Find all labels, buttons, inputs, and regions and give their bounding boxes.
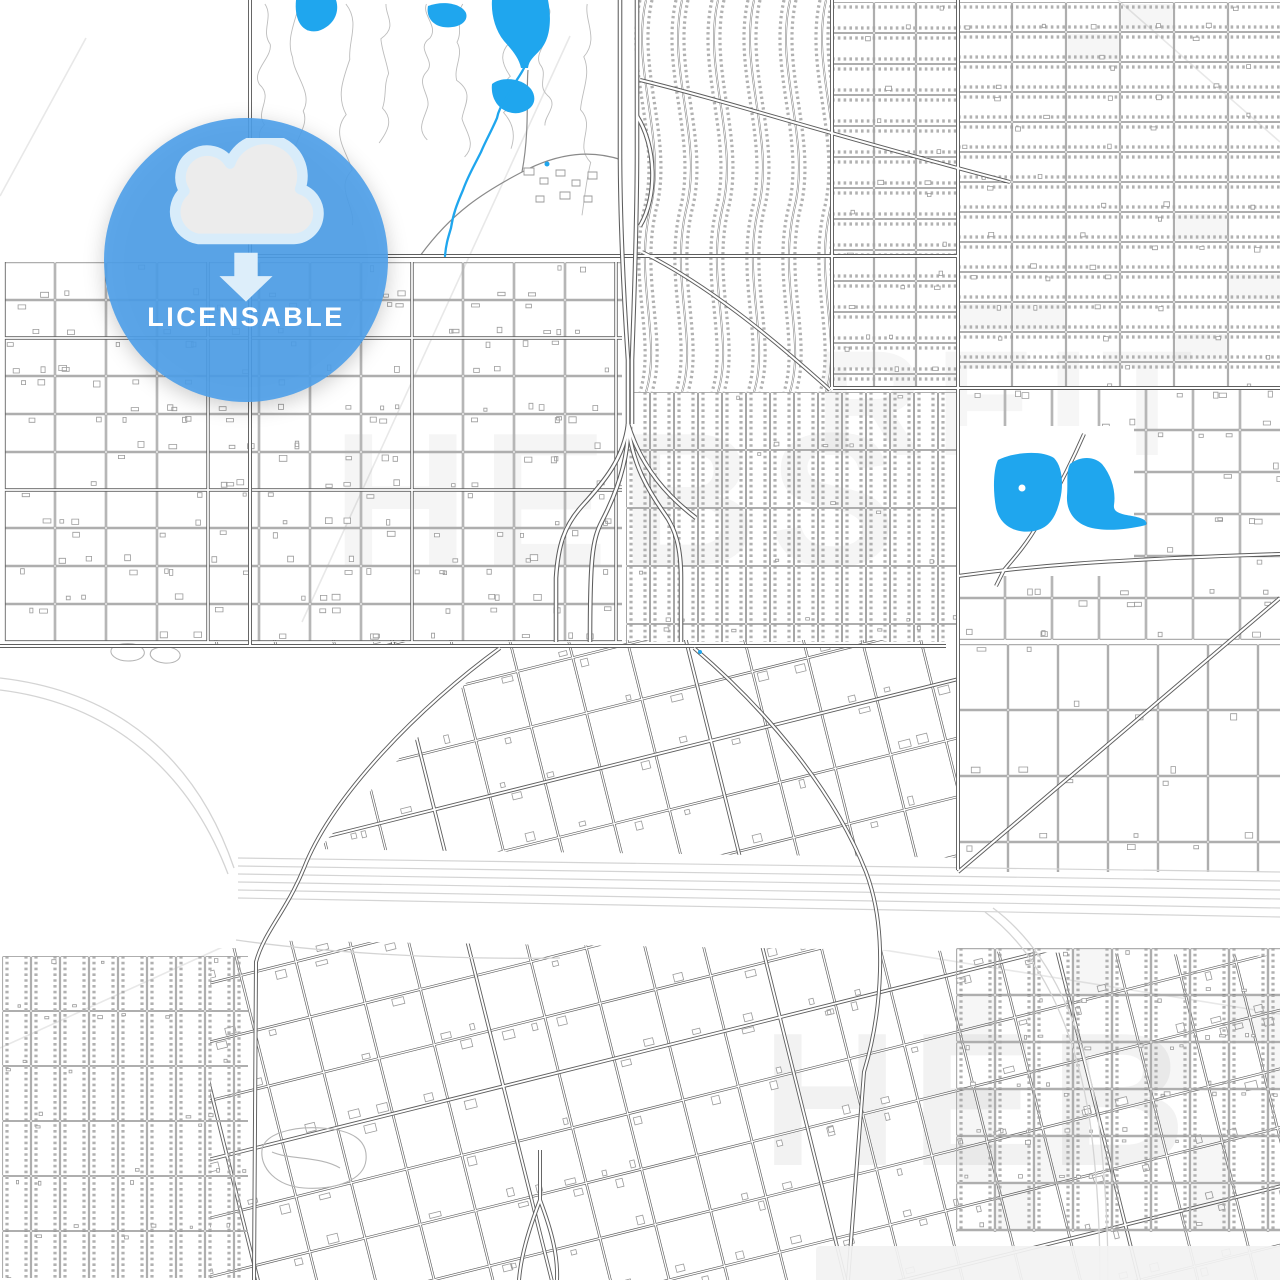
download-arrow xyxy=(219,253,272,302)
map-stage: HEBSHEBREIT LICENSABLE Hebstreits.com | … xyxy=(0,0,1280,1280)
licensable-label: LICENSABLE xyxy=(147,302,345,333)
licensable-badge: LICENSABLE xyxy=(104,118,388,402)
attribution-bar: Hebstreits.com | © OpenStreetMap contrib… xyxy=(816,1246,1280,1280)
cloud-download-icon xyxy=(161,138,331,308)
cloud-shape xyxy=(175,139,318,239)
